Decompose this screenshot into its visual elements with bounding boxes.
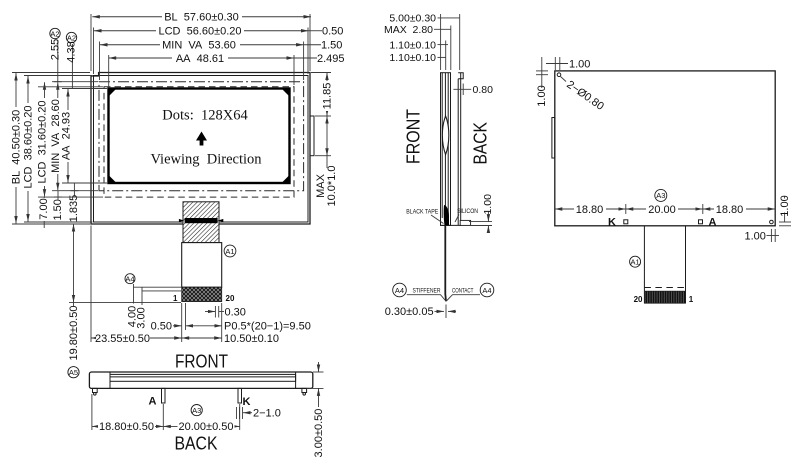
svg-text:10.50±0.10: 10.50±0.10: [224, 333, 279, 345]
svg-text:1.00: 1.00: [536, 85, 548, 106]
svg-text:LCD 31.60±0.20: LCD 31.60±0.20: [36, 100, 48, 183]
svg-text:0.30: 0.30: [225, 306, 246, 318]
svg-text:LCD 56.60±0.20: LCD 56.60±0.20: [158, 26, 241, 38]
svg-text:1.00: 1.00: [482, 194, 494, 215]
svg-text:20: 20: [226, 294, 235, 303]
svg-text:4.38: 4.38: [66, 41, 78, 62]
svg-text:K: K: [243, 396, 251, 408]
svg-text:BACK: BACK: [470, 122, 491, 165]
svg-text:BLACK TAPE: BLACK TAPE: [406, 209, 438, 216]
svg-text:Viewing Direction: Viewing Direction: [150, 152, 262, 168]
svg-text:11.85: 11.85: [322, 83, 334, 110]
svg-text:1.50: 1.50: [321, 40, 342, 52]
svg-text:1.00: 1.00: [744, 230, 765, 242]
svg-text:2.55: 2.55: [50, 39, 62, 60]
svg-text:A2: A2: [50, 29, 59, 38]
svg-text:18.80: 18.80: [716, 204, 744, 216]
svg-text:23.55±0.50: 23.55±0.50: [95, 333, 150, 345]
svg-text:A3: A3: [192, 406, 201, 415]
svg-text:A1: A1: [225, 247, 234, 256]
svg-text:2−1.0: 2−1.0: [253, 408, 281, 420]
svg-text:0.50: 0.50: [322, 26, 343, 38]
svg-text:A2: A2: [67, 33, 76, 42]
svg-text:A4: A4: [395, 286, 404, 295]
svg-text:AA 48.61: AA 48.61: [176, 53, 224, 65]
svg-text:20: 20: [634, 295, 643, 304]
svg-text:18.80±0.50: 18.80±0.50: [99, 421, 154, 433]
svg-text:3.00: 3.00: [136, 307, 148, 328]
svg-text:A: A: [709, 217, 717, 229]
svg-text:Dots: 128X64: Dots: 128X64: [162, 108, 248, 124]
svg-text:FRONT: FRONT: [175, 351, 228, 372]
svg-text:3.00±0.50: 3.00±0.50: [313, 409, 325, 458]
svg-text:LCD 38.60±0.20: LCD 38.60±0.20: [23, 105, 35, 188]
svg-text:1.10±0.10: 1.10±0.10: [389, 52, 436, 64]
svg-text:BL 57.60±0.30: BL 57.60±0.30: [164, 12, 239, 24]
svg-text:FRONT: FRONT: [403, 109, 424, 164]
svg-text:1.50: 1.50: [52, 199, 64, 220]
svg-text:SILICON: SILICON: [457, 208, 478, 215]
svg-text:0.80: 0.80: [473, 84, 494, 96]
svg-text:1.00: 1.00: [779, 195, 791, 216]
svg-text:A1: A1: [631, 258, 640, 267]
svg-text:1: 1: [173, 294, 178, 303]
svg-text:A4: A4: [125, 275, 134, 284]
svg-text:MAX 2.80: MAX 2.80: [384, 24, 433, 36]
svg-text:A: A: [149, 396, 157, 408]
svg-text:A5: A5: [69, 368, 78, 377]
svg-text:CONTACT: CONTACT: [452, 287, 474, 294]
svg-text:K: K: [608, 217, 616, 229]
svg-text:1.10±0.10: 1.10±0.10: [389, 39, 436, 51]
svg-text:A4: A4: [482, 286, 491, 295]
svg-text:1.835: 1.835: [68, 195, 80, 223]
svg-text:AA 24.93: AA 24.93: [61, 112, 73, 160]
svg-text:A3: A3: [656, 191, 665, 200]
svg-text:1: 1: [689, 295, 694, 304]
svg-text:7.00: 7.00: [38, 198, 50, 219]
svg-text:STIFFENER: STIFFENER: [413, 287, 441, 294]
svg-text:1.00: 1.00: [569, 58, 590, 70]
svg-text:MIN VA 53.60: MIN VA 53.60: [162, 40, 236, 52]
svg-text:10.0*1.0: 10.0*1.0: [326, 166, 338, 207]
svg-text:BL 40.50±0.30: BL 40.50±0.30: [11, 110, 23, 185]
svg-text:0.50: 0.50: [151, 321, 172, 333]
svg-text:20.00±0.50: 20.00±0.50: [179, 421, 234, 433]
svg-text:5.00±0.30: 5.00±0.30: [389, 13, 436, 25]
svg-text:2.495: 2.495: [317, 53, 345, 65]
svg-text:BACK: BACK: [175, 433, 219, 454]
svg-text:0.30±0.05: 0.30±0.05: [385, 306, 434, 318]
svg-text:P0.5*(20−1)=9.50: P0.5*(20−1)=9.50: [224, 321, 311, 333]
svg-text:20.00: 20.00: [648, 204, 676, 216]
svg-text:19.80±0.50: 19.80±0.50: [68, 306, 80, 361]
svg-text:18.80: 18.80: [576, 204, 604, 216]
